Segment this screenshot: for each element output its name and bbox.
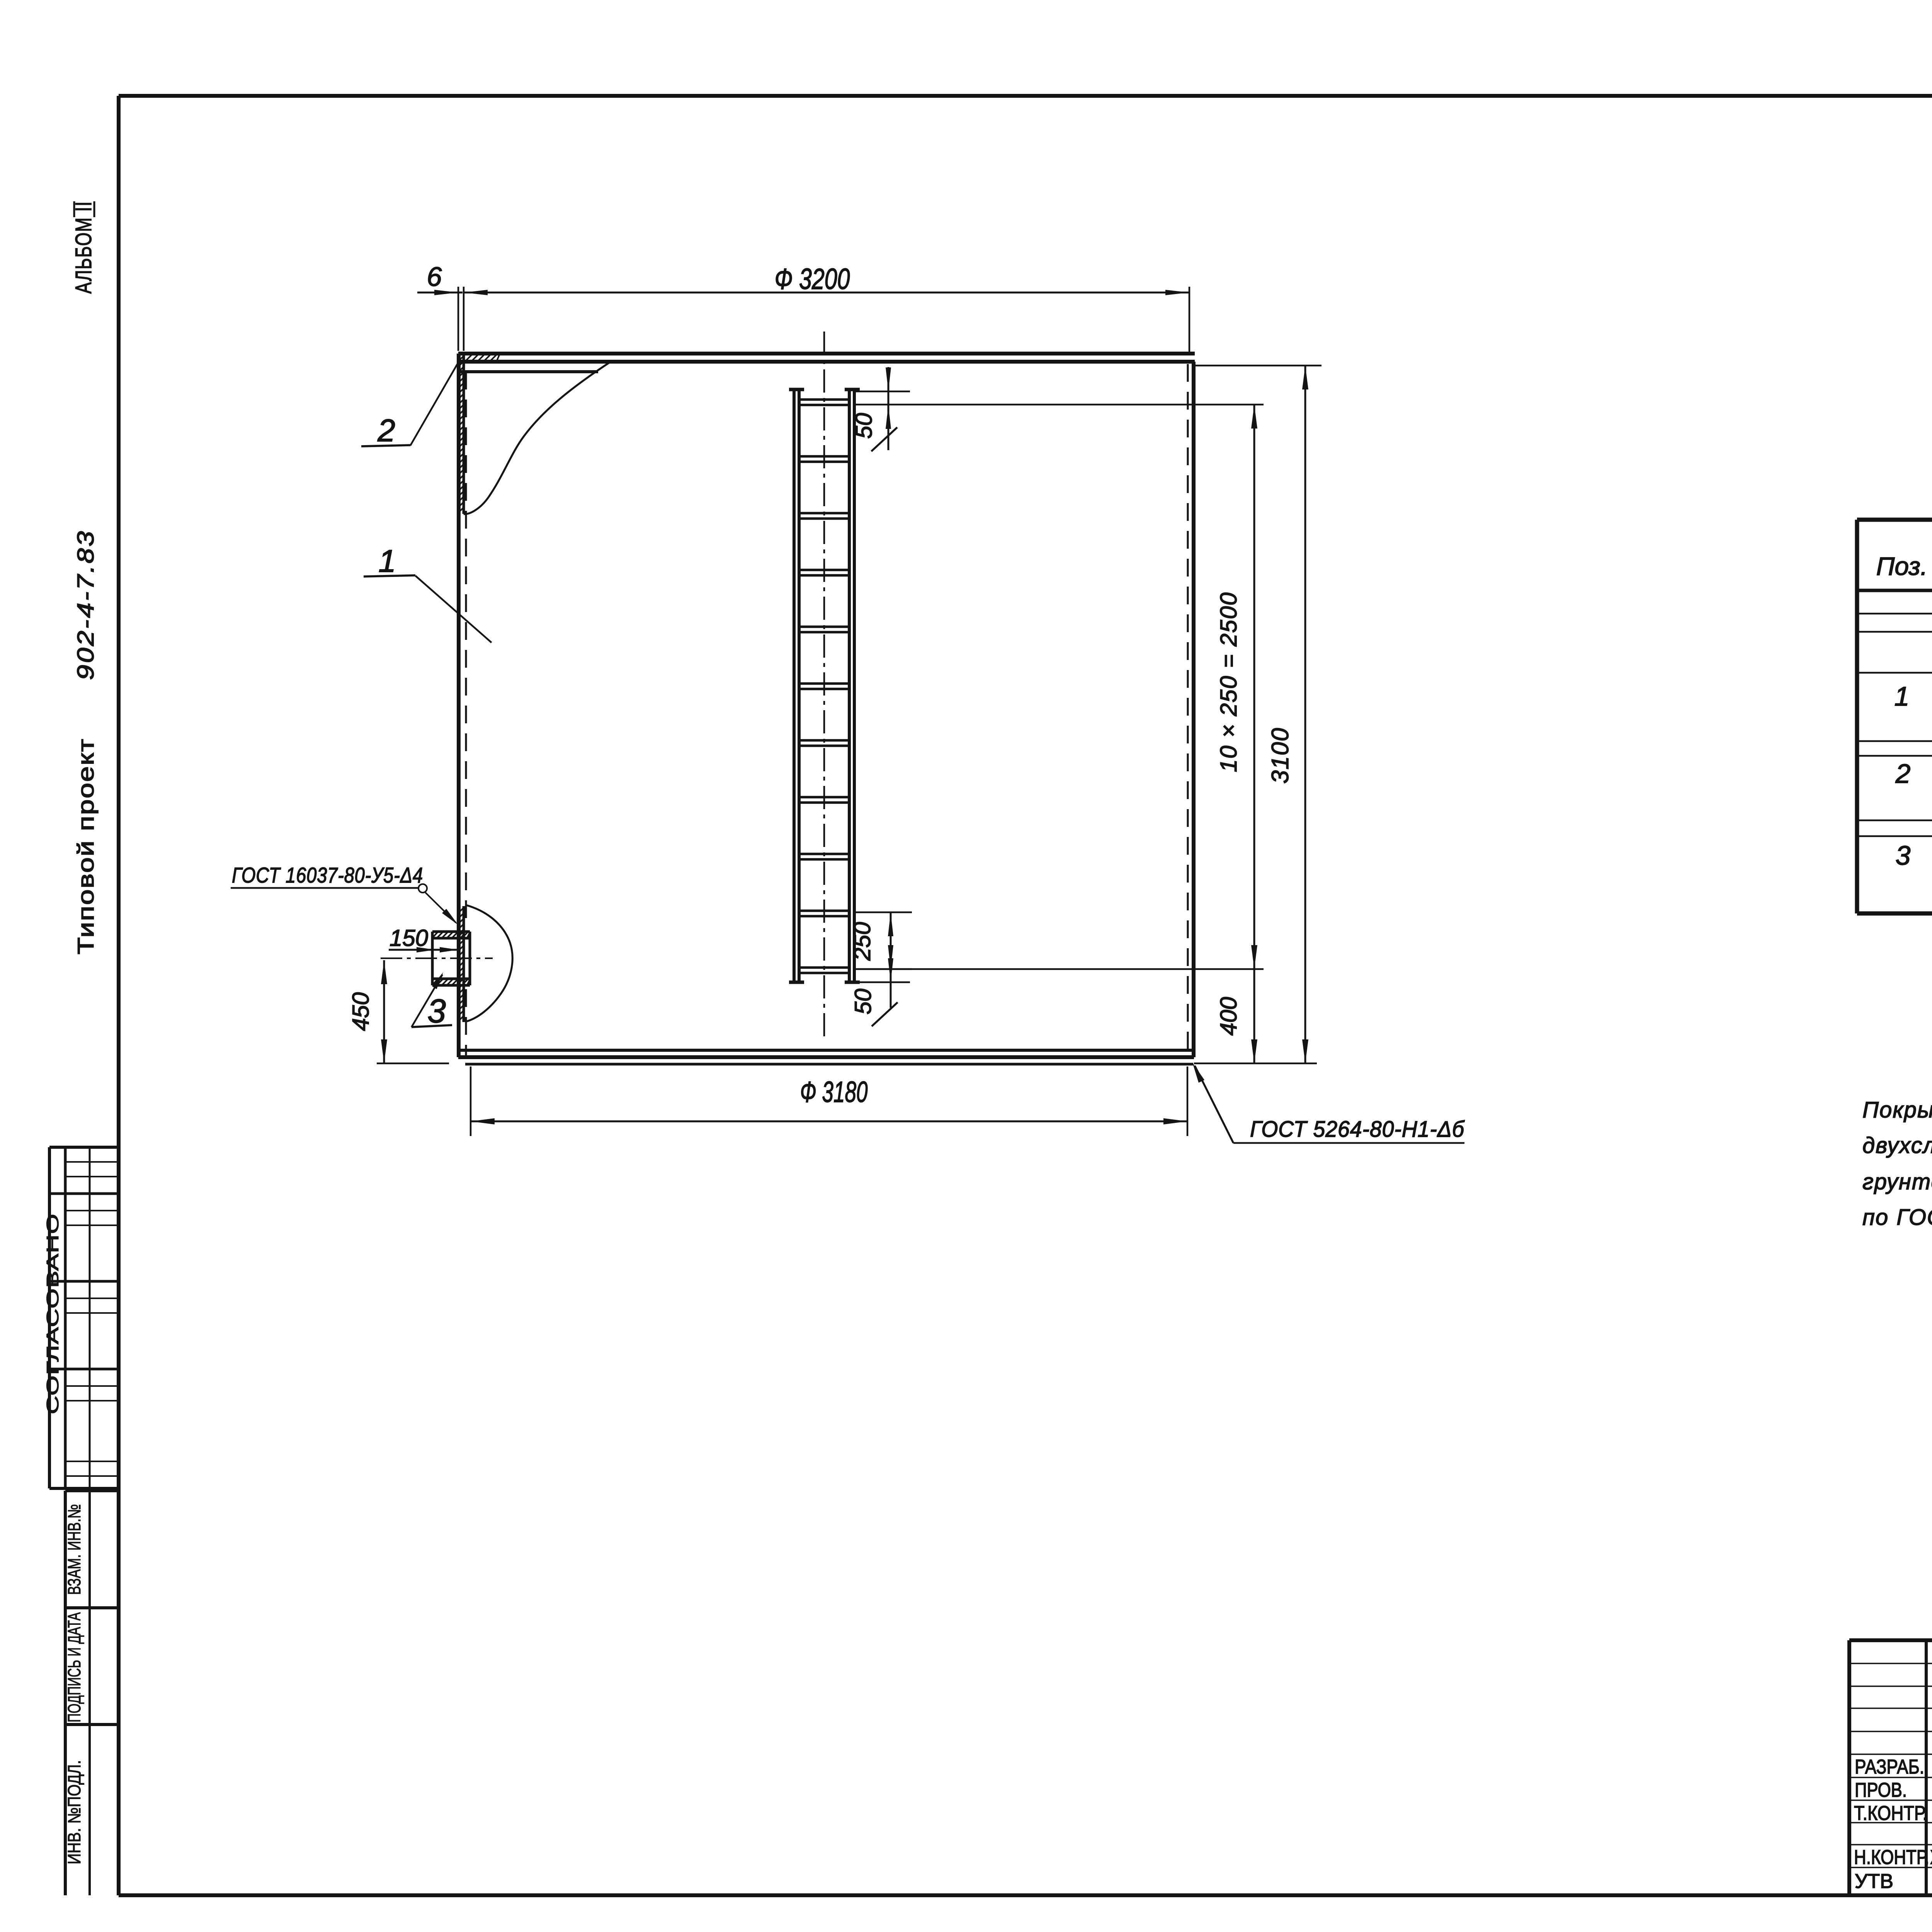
svg-text:450: 450	[348, 992, 374, 1031]
svg-text:РАЗРАБ.: РАЗРАБ.	[1855, 1756, 1924, 1778]
svg-text:2: 2	[377, 413, 395, 448]
svg-text:250: 250	[849, 922, 875, 961]
svg-text:3: 3	[1896, 840, 1911, 871]
svg-text:УТВ: УТВ	[1855, 1870, 1893, 1893]
svg-text:ИНВ. №ПОДЛ.: ИНВ. №ПОДЛ.	[64, 1760, 84, 1864]
svg-text:Т.КОНТР.: Т.КОНТР.	[1854, 1802, 1927, 1825]
svg-text:ПОДПИСЬ И ДАТА: ПОДПИСЬ И ДАТА	[64, 1612, 84, 1722]
svg-text:Поз.: Поз.	[1876, 552, 1928, 580]
svg-text:10 × 250 = 2500: 10 × 250 = 2500	[1216, 592, 1242, 772]
svg-text:двухслойное, внутренних - ко: двухслойное, внутренних - комплексное че…	[1862, 1133, 1932, 1158]
svg-text:1: 1	[1895, 681, 1910, 711]
svg-text:Ф 3180: Ф 3180	[800, 1076, 868, 1109]
svg-text:Покрытие наружных поверх: Покрытие наружных поверхностей - комплек…	[1862, 1097, 1932, 1122]
svg-text:ГОСТ 16037-80-У5-Δ4: ГОСТ 16037-80-У5-Δ4	[232, 863, 423, 887]
svg-text:Н.КОНТР.: Н.КОНТР.	[1854, 1846, 1929, 1869]
svg-text:Ф 3200: Ф 3200	[775, 263, 850, 296]
svg-text:1: 1	[378, 544, 396, 579]
svg-text:902-4-7.83: 902-4-7.83	[73, 529, 99, 680]
svg-text:грунтом ХС-010, эмалью Х: грунтом ХС-010, эмалью ХС- 710 и лаком Х…	[1862, 1169, 1932, 1194]
svg-text:3: 3	[427, 993, 446, 1030]
svg-text:150: 150	[389, 925, 428, 951]
svg-text:6: 6	[427, 262, 442, 292]
svg-text:ГОСТ 5264-80-Н1-Δб: ГОСТ 5264-80-Н1-Δб	[1250, 1117, 1465, 1142]
svg-text:ХРОМИХИНА: ХРОМИХИНА	[1930, 1846, 1932, 1869]
svg-text:3100: 3100	[1267, 727, 1294, 784]
svg-text:ВЗАМ. ИНВ.№: ВЗАМ. ИНВ.№	[64, 1504, 84, 1595]
svg-text:Типовой проект: Типовой проект	[73, 738, 99, 954]
svg-text:50: 50	[850, 989, 876, 1015]
svg-text:50: 50	[851, 413, 877, 439]
svg-text:СОГЛАСОВАНО: СОГЛАСОВАНО	[43, 1213, 62, 1414]
svg-text:400: 400	[1216, 997, 1242, 1036]
svg-text:2: 2	[1895, 759, 1911, 789]
svg-text:ПРОВ.: ПРОВ.	[1855, 1779, 1907, 1801]
svg-text:по ГОСТ 9355- 81.: по ГОСТ 9355- 81.	[1862, 1205, 1932, 1230]
